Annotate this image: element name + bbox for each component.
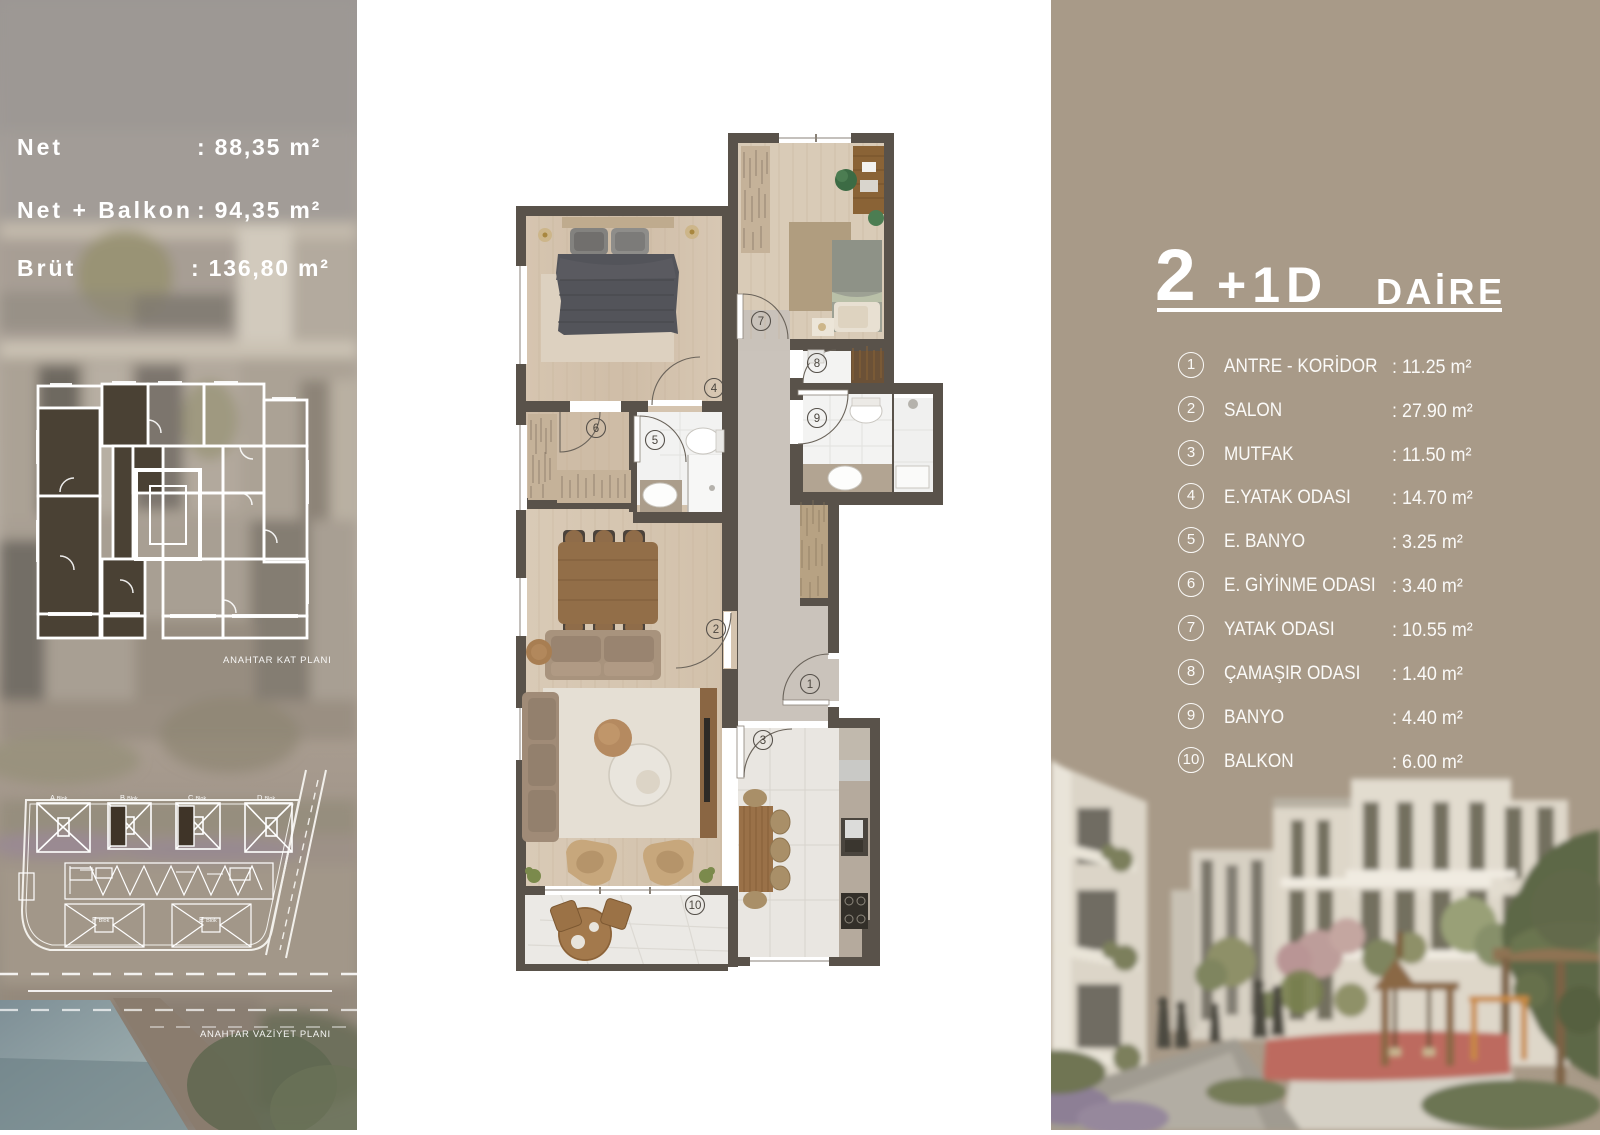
svg-text:1: 1 — [807, 679, 813, 691]
svg-text:4: 4 — [711, 383, 718, 395]
svg-text:9: 9 — [814, 413, 820, 425]
svg-text:6: 6 — [593, 423, 599, 435]
svg-text:3: 3 — [760, 735, 766, 747]
svg-text:5: 5 — [652, 435, 658, 447]
svg-text:8: 8 — [814, 358, 820, 370]
svg-text:7: 7 — [758, 316, 764, 328]
svg-text:2: 2 — [713, 624, 719, 636]
svg-text:10: 10 — [689, 900, 702, 912]
